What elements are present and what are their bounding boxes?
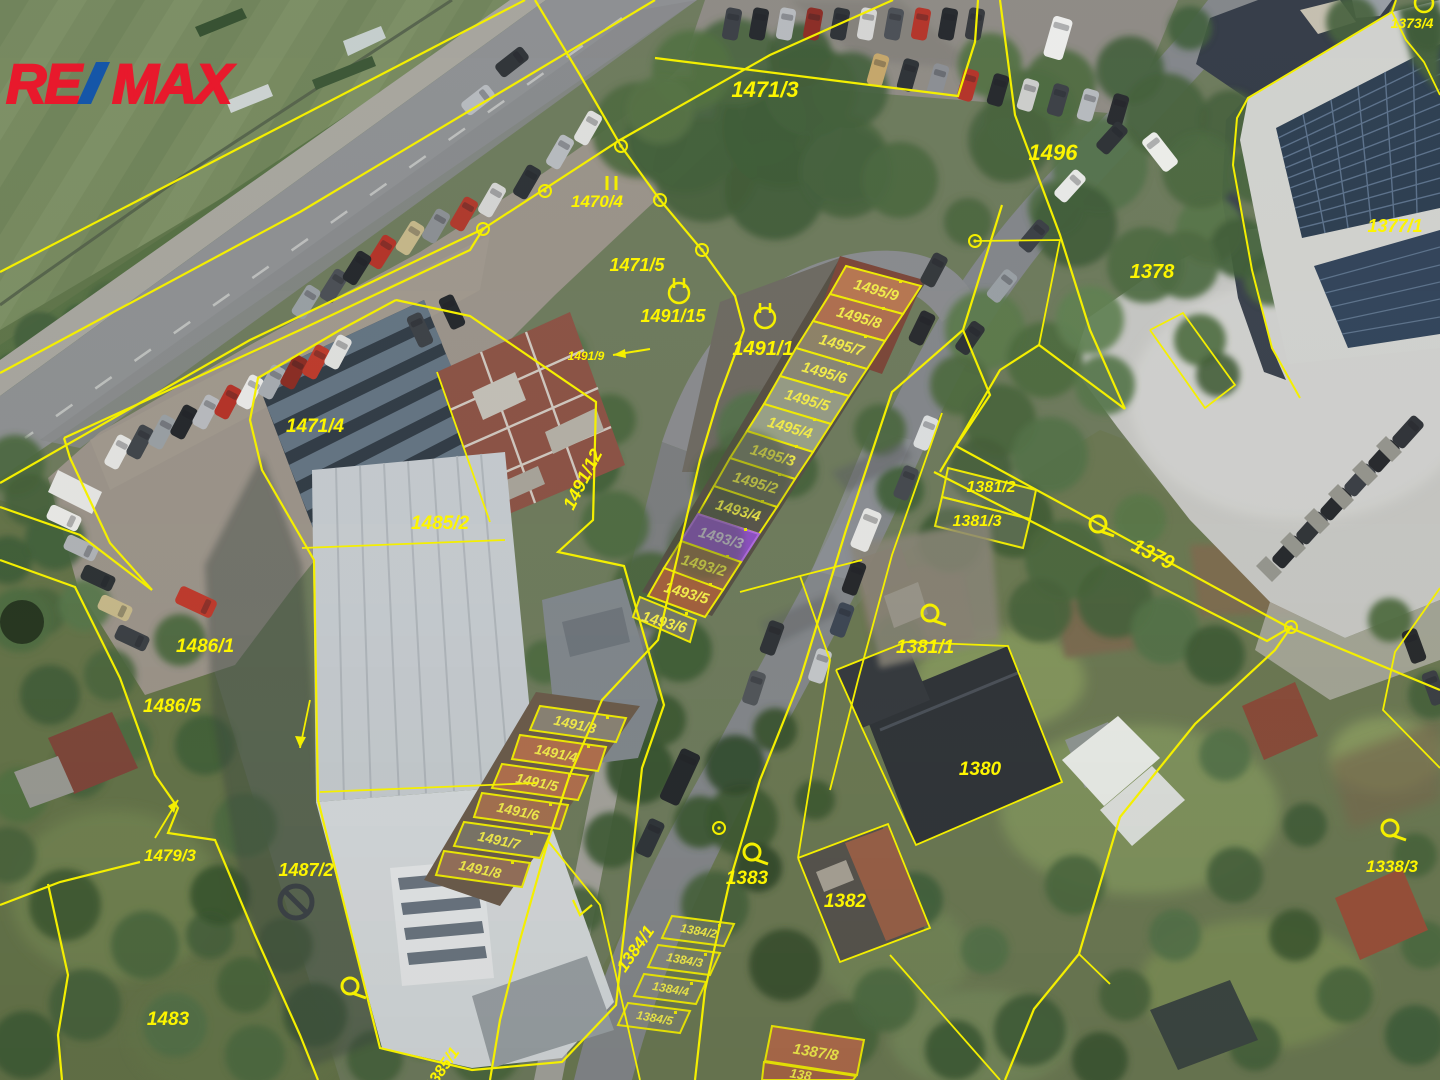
svg-text:1382: 1382 (824, 891, 867, 912)
svg-text:1378: 1378 (1130, 261, 1175, 283)
svg-text:1381/2: 1381/2 (967, 479, 1016, 496)
svg-text:1471/3: 1471/3 (731, 77, 798, 102)
svg-text:1380: 1380 (959, 759, 1002, 780)
svg-text:MAX: MAX (112, 52, 236, 115)
svg-text:1338/3: 1338/3 (1366, 857, 1419, 876)
svg-text:1491/15: 1491/15 (640, 306, 706, 326)
svg-text:1471/5: 1471/5 (609, 255, 665, 275)
svg-text:1485/2: 1485/2 (411, 513, 470, 534)
svg-text:1383: 1383 (726, 868, 769, 889)
svg-text:RE: RE (6, 52, 83, 115)
svg-text:1381/3: 1381/3 (953, 513, 1002, 530)
svg-text:1486/1: 1486/1 (176, 636, 234, 657)
svg-text:1373/4: 1373/4 (1391, 15, 1434, 31)
svg-text:1491/9: 1491/9 (568, 349, 605, 363)
svg-text:1471/4: 1471/4 (286, 416, 345, 437)
svg-text:1377/1: 1377/1 (1367, 216, 1422, 236)
svg-text:1479/3: 1479/3 (144, 846, 197, 865)
svg-text:1486/5: 1486/5 (143, 696, 202, 717)
svg-text:1470/4: 1470/4 (571, 192, 624, 211)
svg-text:1496: 1496 (1029, 140, 1079, 165)
svg-text:1381/1: 1381/1 (896, 637, 954, 658)
svg-text:1483: 1483 (147, 1009, 190, 1030)
svg-text:1491/1: 1491/1 (732, 338, 793, 360)
svg-text:1487/2: 1487/2 (278, 860, 333, 880)
